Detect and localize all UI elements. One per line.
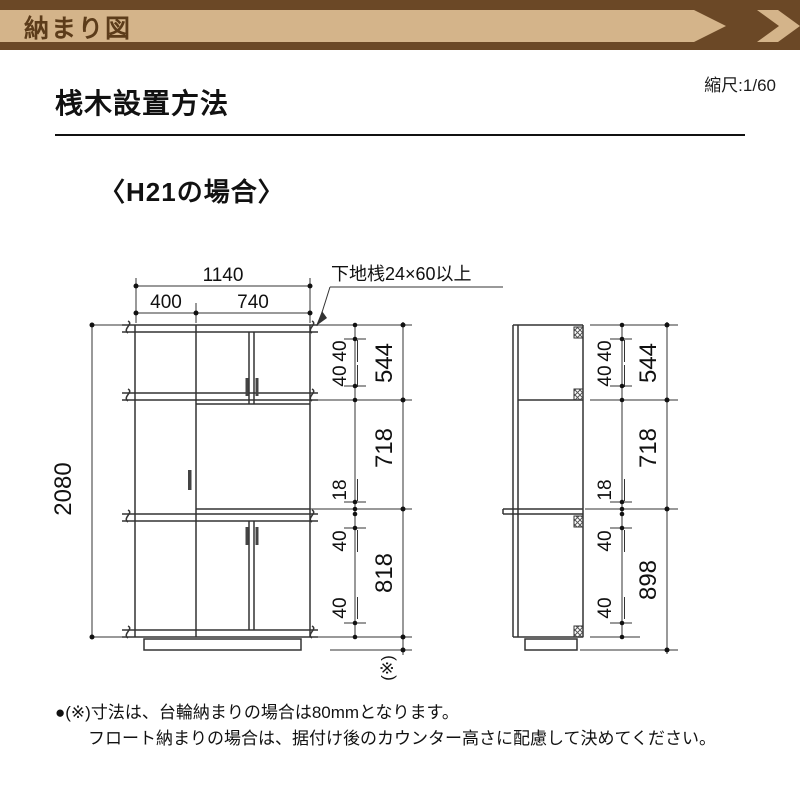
banner: 納まり図: [0, 0, 800, 50]
front-dim-middle-height: 718: [371, 428, 398, 468]
front-dimensions: [90, 278, 504, 655]
side-dim-rail-upper-bottom: 40: [595, 365, 616, 386]
side-dim-rail-top: 40: [595, 340, 616, 361]
banner-title: 納まり図: [24, 9, 132, 45]
page: 納まり図 縮尺:1/60 桟木設置方法 〈H21の場合〉: [0, 0, 800, 800]
side-dim-middle-height: 718: [635, 428, 662, 468]
footnote: ●(※)寸法は、台輪納まりの場合は80mmとなります。 フロート納まりの場合は、…: [55, 700, 765, 752]
front-dim-upper-height: 544: [371, 343, 398, 383]
installation-diagram: 1140 400 740 下地桟24×60以上 2080 40 40 18 40…: [0, 230, 800, 700]
front-dim-total-width: 1140: [203, 265, 244, 286]
front-dim-rail-counter: 40: [330, 530, 351, 551]
front-dim-lower-height: 818: [371, 553, 398, 593]
front-rails: [122, 321, 318, 638]
front-dim-counter-thickness: 18: [330, 479, 351, 500]
side-base: [525, 639, 577, 650]
side-dim-counter-thickness: 18: [595, 479, 616, 500]
footnote-line2: フロート納まりの場合は、据付け後のカウンター高さに配慮して決めてください。: [55, 726, 765, 752]
front-dim-left-width: 400: [150, 292, 182, 313]
side-dim-lower-height: 898: [635, 560, 662, 600]
side-dim-rail-bottom: 40: [595, 597, 616, 618]
front-dim-right-width: 740: [237, 292, 269, 313]
front-cabinet: [135, 325, 310, 650]
side-dim-rail-counter: 40: [595, 530, 616, 551]
front-view: [122, 321, 318, 650]
section-heading: 〈H21の場合〉: [99, 172, 285, 209]
side-view: [503, 325, 583, 650]
front-dim-rail-bottom: 40: [330, 597, 351, 618]
scale-label: 縮尺:1/60: [704, 71, 776, 96]
front-dim-rail-top: 40: [330, 340, 351, 361]
page-heading: 桟木設置方法: [55, 82, 229, 122]
front-base: [144, 639, 301, 650]
heading-rule: [55, 134, 745, 136]
footnote-line1: ●(※)寸法は、台輪納まりの場合は80mmとなります。: [55, 700, 765, 726]
front-door-handles: [188, 378, 259, 545]
side-dim-upper-height: 544: [635, 343, 662, 383]
side-rail-sections: [574, 327, 583, 637]
front-dim-floor-note: (※): [378, 655, 397, 681]
front-dim-total-height: 2080: [50, 462, 77, 515]
leader-label: 下地桟24×60以上: [331, 264, 472, 284]
front-dim-rail-upper-bottom: 40: [330, 365, 351, 386]
